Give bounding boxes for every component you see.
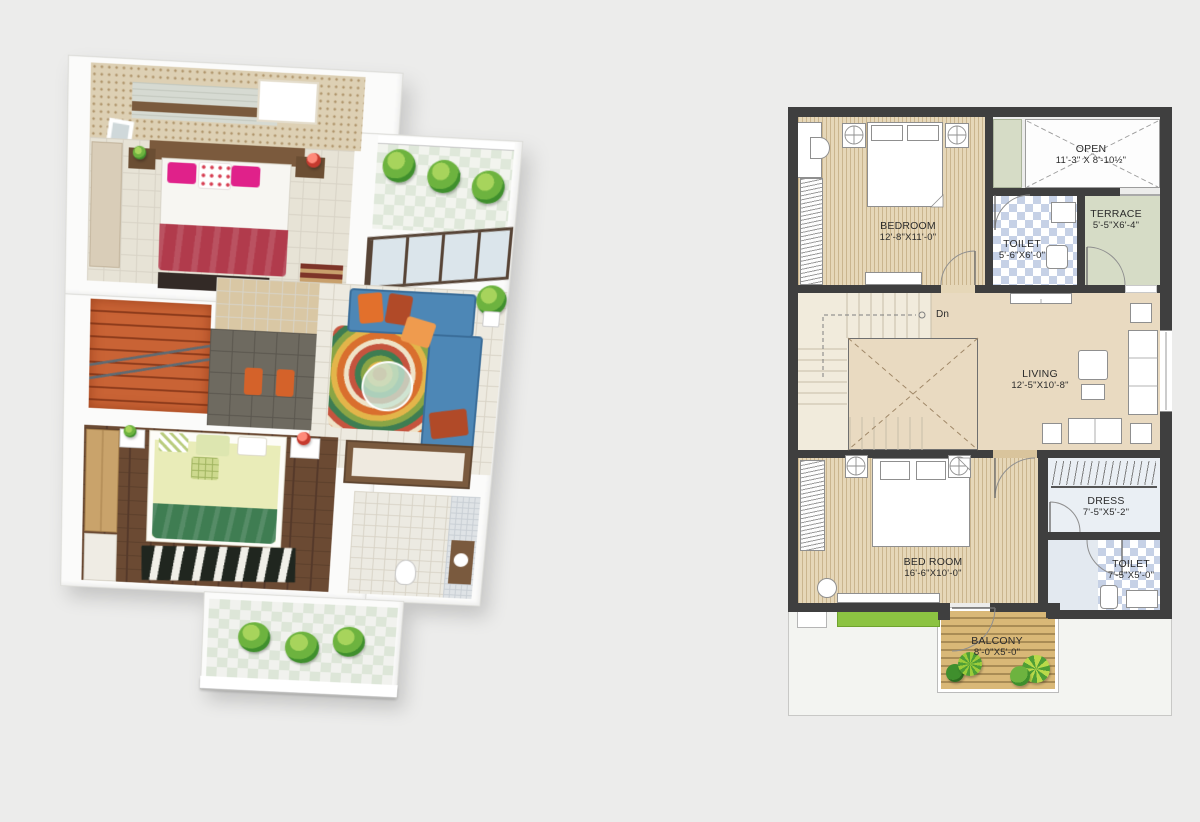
- sofa-cushion-rust-2: [429, 409, 469, 440]
- stairwell-void: [848, 338, 978, 450]
- side-table-2: [1130, 423, 1152, 444]
- glass-partition: [364, 227, 513, 289]
- bed-blanket-red: [158, 224, 288, 277]
- armchair: [1078, 350, 1108, 380]
- bed2-pillow-left: [880, 461, 910, 480]
- label-bedroom1-name: BEDROOM: [880, 221, 936, 233]
- sofa-cushion-orange-1: [358, 292, 384, 324]
- dress-hanger-rack: [1052, 461, 1156, 485]
- label-bedroom1-dims: 12'-8"X11'-0": [880, 233, 937, 243]
- wall-dress-toilet-divider: [1048, 532, 1160, 540]
- wall-niche: [257, 79, 320, 125]
- label-toilet2-dims: 7'-5"X5'-0": [1108, 571, 1154, 581]
- label-toilet1-dims: 5'-6"X6'-0": [999, 251, 1045, 261]
- lower-floor-chair-2: [275, 369, 294, 397]
- page: { "page": {"background": "#ececeb"}, "pl…: [0, 0, 1200, 822]
- bedside2-left: [845, 455, 868, 478]
- tv-unit: [1010, 293, 1072, 304]
- wardrobe-3d: [84, 429, 119, 533]
- bed2-pillow-1: [159, 432, 189, 452]
- label-dress-name: DRESS: [1087, 496, 1124, 508]
- terrace-door-gap: [1125, 285, 1157, 293]
- label-open-name: OPEN: [1076, 144, 1107, 156]
- bed2-pillow-right: [916, 461, 946, 480]
- balcony2d-plant-4: [1010, 666, 1030, 686]
- toilet-wc-3d: [394, 559, 417, 585]
- coffee-table: [1068, 418, 1122, 444]
- isometric-3d-floorplan: [18, 40, 578, 800]
- side-table-1: [1130, 303, 1152, 323]
- dress-counter-inner: [351, 448, 465, 482]
- stair-strip-left: [798, 293, 848, 450]
- white-cabinet-3d: [83, 533, 117, 582]
- label-living-name: LIVING: [1022, 369, 1058, 381]
- wall-top: [788, 107, 1172, 117]
- bed-pillow-floral: [198, 162, 232, 191]
- wall-open-bottom: [985, 188, 1120, 196]
- label-living-dims: 12'-5"X10'-8": [1011, 381, 1068, 391]
- toilet2-shower-floor: [1048, 540, 1098, 610]
- label-bedroom2-name: BED ROOM: [904, 557, 963, 569]
- stair-flight-upper: [848, 293, 931, 338]
- bedside1-table-left: [842, 123, 866, 148]
- bed2-blanket-green: [152, 503, 277, 544]
- label-dress-dims: 7'-5"X5'-2": [1083, 508, 1129, 518]
- bed2-pillow-3: [237, 436, 267, 456]
- label-terrace-name: TERRACE: [1090, 209, 1142, 221]
- label-open-dims: 11'-3" X 8'-10½": [1056, 156, 1126, 166]
- toilet2-wc: [1100, 585, 1118, 609]
- wall-toilet2-bottom: [1048, 610, 1172, 619]
- sofa-2d: [1128, 330, 1158, 415]
- bed2-pillow-2: [196, 434, 230, 456]
- dress-hanger-rod: [1051, 486, 1157, 488]
- wall-left: [788, 107, 798, 612]
- bed1-pillow-right: [907, 125, 939, 141]
- lower-floor-chair-1: [244, 367, 263, 395]
- bedroom1-chair: [810, 137, 830, 159]
- bedroom2-round-table: [817, 578, 837, 598]
- wall-stub-balcony-left: [938, 603, 950, 620]
- terrace-top-line: [1120, 194, 1160, 196]
- toilet2-sink: [1126, 590, 1158, 608]
- striped-rug: [141, 546, 295, 583]
- wardrobe2: [800, 460, 825, 551]
- bed1-pillow-left: [871, 125, 903, 141]
- label-bedroom2-dims: 16'-6"X10'-0": [904, 569, 961, 579]
- bed2-pillow-checker: [191, 457, 219, 481]
- label-balcony-name: BALCONY: [971, 636, 1023, 648]
- label-toilet1-name: TOILET: [1003, 239, 1041, 251]
- living-door-gap: [993, 450, 1037, 458]
- wall-stub-balcony-right: [1046, 603, 1060, 618]
- stair-railing: [89, 299, 212, 414]
- bedside1-table-right: [945, 123, 969, 148]
- wardrobe1: [800, 178, 823, 285]
- bed-pillow-pink-left: [167, 162, 197, 184]
- ottoman: [1081, 384, 1105, 400]
- toilet1-sink: [1051, 202, 1076, 223]
- wall-bedroom1-right: [985, 117, 993, 285]
- 2d-floorplan: BEDROOM 12'-8"X11'-0" OPEN 11'-3" X 8'-1…: [788, 103, 1172, 719]
- 3d-plan-canvas: [59, 55, 529, 703]
- label-balcony-dims: 8'-0"X5'-0": [974, 648, 1020, 658]
- side-table-3: [1042, 423, 1062, 444]
- bedroom2-cabinet: [837, 593, 940, 603]
- wall-bedroom2-right: [1038, 458, 1048, 603]
- bedside2-right: [948, 455, 971, 478]
- wall-bedroom2-bottom: [788, 603, 940, 612]
- bedroom1-dresser: [865, 272, 922, 285]
- planter-ledge: [993, 119, 1022, 188]
- label-toilet2-name: TOILET: [1112, 559, 1150, 571]
- toilet1-wc: [1046, 245, 1068, 269]
- label-terrace-dims: 5'-5"X6'-4": [1093, 221, 1139, 231]
- wall-mid-band: [788, 285, 1172, 293]
- bedroom1-door-gap: [941, 285, 975, 293]
- wall-toilet1-right: [1077, 196, 1085, 285]
- living-plant-pot: [482, 311, 500, 328]
- bedroom1-left-counter: [89, 141, 122, 268]
- living-window: [1160, 330, 1172, 412]
- bed-pillow-pink-right: [231, 165, 261, 187]
- wall-bedroom2-bottom-right: [990, 603, 1048, 612]
- label-stairs-dn: Dn: [936, 309, 949, 320]
